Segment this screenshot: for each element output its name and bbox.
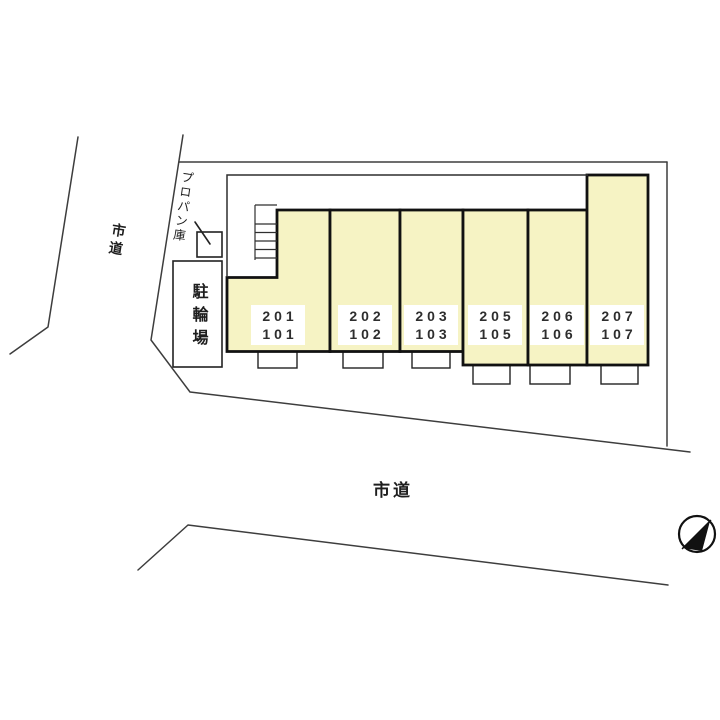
unit-number-lower: 106 xyxy=(537,326,576,343)
site-plan: 201 101 202 102 203 103 205 105 206 106 … xyxy=(0,0,720,720)
north-arrow-icon xyxy=(679,516,715,552)
entrance-porch xyxy=(343,351,383,368)
staircase xyxy=(255,205,277,260)
unit-number-upper: 207 xyxy=(597,308,636,325)
unit-number-lower: 105 xyxy=(475,326,514,343)
entrance-porch xyxy=(601,365,638,384)
unit-number-upper: 206 xyxy=(537,308,576,325)
bicycle-parking-label-box: 駐輪場 xyxy=(173,261,222,367)
entrance-porch xyxy=(258,351,297,368)
unit-number-lower: 102 xyxy=(345,326,384,343)
road-edge-left xyxy=(10,137,78,354)
road-edge-bottom xyxy=(138,525,668,585)
bicycle-parking-label: 駐輪場 xyxy=(186,277,210,352)
unit-label-206-106: 206 106 xyxy=(530,305,584,345)
unit-label-205-105: 205 105 xyxy=(468,305,522,345)
site-plan-drawing xyxy=(0,0,720,720)
unit-number-upper: 201 xyxy=(258,308,297,325)
unit-label-207-107: 207 107 xyxy=(590,305,644,345)
entrance-porch xyxy=(530,365,570,384)
unit-label-201-101: 201 101 xyxy=(251,305,305,345)
unit-number-upper: 205 xyxy=(475,308,514,325)
unit-number-lower: 101 xyxy=(258,326,297,343)
entrance-porch xyxy=(412,351,450,368)
entrance-porch xyxy=(473,365,510,384)
unit-number-upper: 202 xyxy=(345,308,384,325)
unit-number-lower: 103 xyxy=(411,326,450,343)
unit-number-lower: 107 xyxy=(597,326,636,343)
unit-label-202-102: 202 102 xyxy=(338,305,392,345)
city-road-label-bottom: 市道 xyxy=(358,476,428,501)
unit-number-upper: 203 xyxy=(411,308,450,325)
unit-label-203-103: 203 103 xyxy=(404,305,458,345)
